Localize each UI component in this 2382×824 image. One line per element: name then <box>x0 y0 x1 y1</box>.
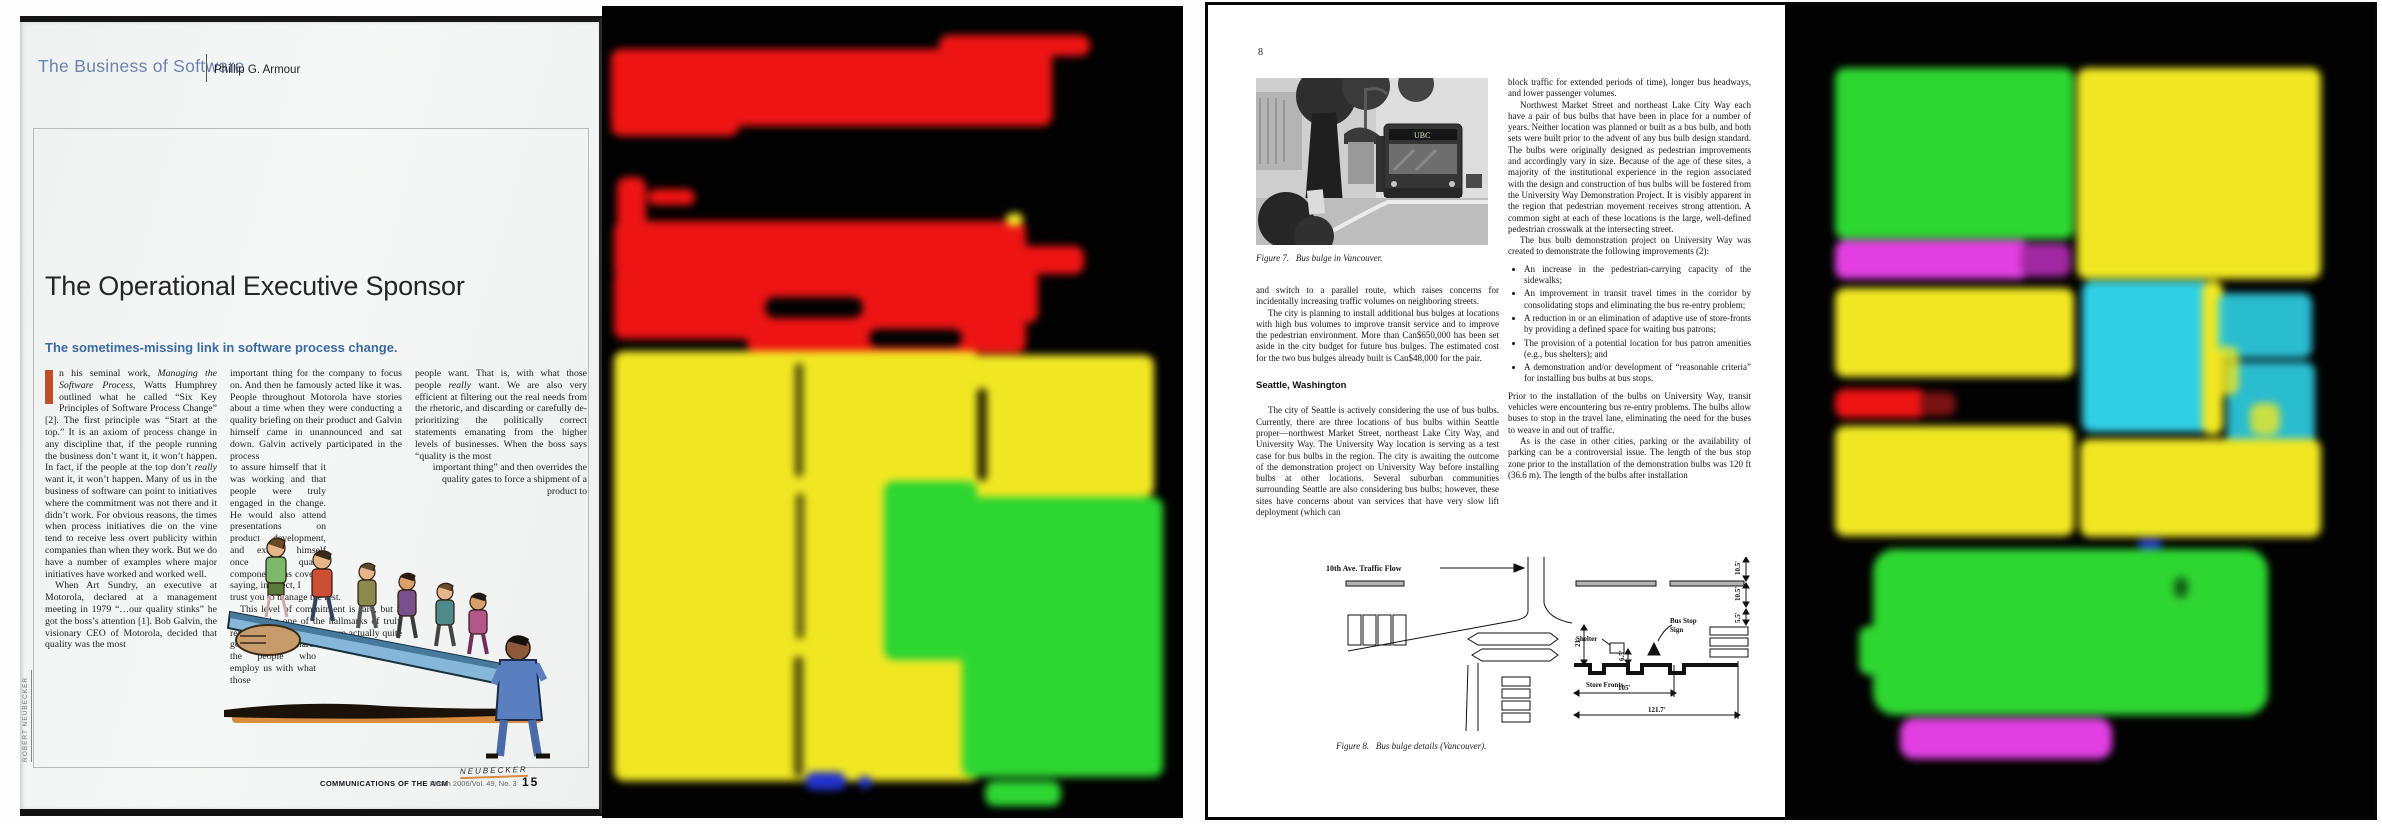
seg-region-cyan-block <box>2082 281 2212 432</box>
photo-bus-bumper <box>1384 188 1462 197</box>
paragraph: and switch to a parallel route, which ra… <box>1256 285 1499 308</box>
dim-21-label: 21' <box>1574 638 1582 647</box>
illustration-credit: ROBERT NEUBECKER <box>22 670 32 762</box>
seg-region-yellow-band-2 <box>1835 426 2074 536</box>
seg-region-red-band-1 <box>611 49 1053 126</box>
photo-car <box>1466 174 1482 188</box>
bus-bulb-2 <box>1472 649 1558 661</box>
figure-businessman <box>486 635 550 756</box>
dim-55-label: 5.5' <box>1734 612 1742 623</box>
seg-gutter-streak-2 <box>796 493 804 639</box>
seg-region-yellow-dot <box>1006 213 1023 226</box>
dim-105a-label: 10.5' <box>1734 561 1742 575</box>
paragraph: important thing for the company to focus… <box>230 368 402 462</box>
seg-region-green-lobe <box>1859 626 1888 675</box>
improvements-list: An increase in the pedestrian-carrying c… <box>1508 264 1751 385</box>
traffic-flow-label: 10th Ave. Traffic Flow <box>1326 564 1402 573</box>
lane-dash-2 <box>1670 581 1744 586</box>
bus-bulb-1 <box>1468 633 1558 645</box>
seg-region-blue-speck <box>2138 539 2162 549</box>
photo-shelter-glass <box>1348 142 1374 184</box>
seg-region-magenta-band <box>1835 240 2029 279</box>
seg-region-yellow-under-cyan <box>2080 439 2321 536</box>
document-page-right: 8 UBC <box>1208 5 1785 817</box>
photo-headlight-right <box>1449 181 1455 187</box>
page-number: 8 <box>1258 47 1263 58</box>
paragraph: When Art Sundry, an executive at Motorol… <box>45 580 217 651</box>
right-page-column-left: and switch to a parallel route, which ra… <box>1256 285 1499 518</box>
author-name: Phillip G. Armour <box>214 64 300 76</box>
figure8-caption: Figure 8. Bus bulge details (Vancouver). <box>1336 741 1656 751</box>
dim-65-label: 6.5' <box>1618 650 1626 661</box>
seg-region-blue-speck-2 <box>858 776 873 788</box>
right-page-column-right: block traffic for extended periods of ti… <box>1508 77 1751 481</box>
giant-hand <box>236 625 300 655</box>
body-column-1: n his seminal work, Managing the Softwar… <box>45 368 217 784</box>
figure-purple <box>398 573 416 638</box>
lower-street-2 <box>1466 665 1468 731</box>
seg-region-blue-speck <box>805 772 846 790</box>
list-item: An increase in the pedestrian-carrying c… <box>1524 264 1751 287</box>
segmentation-blobs <box>1785 5 2374 817</box>
seg-region-yellow-right-top <box>2077 68 2321 279</box>
panel-right: 8 UBC <box>1205 2 2377 820</box>
seg-gap-dark <box>977 388 987 481</box>
list-item: A reduction in or an elimination of adap… <box>1524 313 1751 336</box>
photo-buildings <box>1256 92 1302 170</box>
seg-hole-dark-1 <box>765 297 864 318</box>
figure-pink <box>469 593 487 654</box>
drop-cap-i <box>45 370 53 404</box>
seg-region-magenta-bottom <box>1900 718 2112 759</box>
paragraph: block traffic for extended periods of ti… <box>1508 77 1751 100</box>
seg-region-magenta-tail <box>2021 243 2071 277</box>
crosswalk-lower <box>1502 677 1530 722</box>
seg-hole-dark-2 <box>869 329 962 347</box>
cartoon-illustration <box>202 452 586 766</box>
document-page-left: The Business of Software Phillip G. Armo… <box>20 16 602 816</box>
panel-left: The Business of Software Phillip G. Armo… <box>20 6 1183 818</box>
figure7-caption: Figure 7. Bus bulge in Vancouver. <box>1256 253 1496 263</box>
seg-speck-yellow-1 <box>2215 346 2239 395</box>
artist-signature: NEUBECKER <box>460 765 528 779</box>
paragraph: Northwest Market Street and northeast La… <box>1508 100 1751 236</box>
seg-region-red-band-1b <box>611 116 739 136</box>
figure-woman-green <box>266 538 287 617</box>
seg-region-red-band-2f <box>614 311 759 339</box>
figure-man-red <box>312 551 333 621</box>
bus-photo: UBC <box>1256 78 1488 245</box>
seg-region-yellow-band-1 <box>1835 288 2074 377</box>
seg-region-green-tab <box>985 781 1061 805</box>
figure-teal <box>436 583 454 646</box>
paragraph: As is the case in other cities, parking … <box>1508 436 1751 481</box>
paragraph: Prior to the installation of the bulbs o… <box>1508 391 1751 436</box>
lane-dash-1 <box>1576 581 1656 586</box>
paragraph: The bus bulb demonstration project on Un… <box>1508 235 1751 258</box>
seg-region-red-band <box>1835 389 1926 418</box>
photo-sign-board <box>1307 189 1325 215</box>
photo-windshield <box>1389 144 1457 174</box>
header-divider <box>206 54 207 82</box>
footer-issue: March 2006/Vol. 49, No. 3 <box>430 779 517 788</box>
paragraph: people want. That is, with what those pe… <box>415 368 587 462</box>
bus-bulge-diagram: 10th Ave. Traffic Flow Bus Stop Sign She… <box>1318 557 1758 737</box>
seg-speck-yellow-2 <box>2250 403 2279 435</box>
paragraph: The city is planning to install addition… <box>1256 308 1499 364</box>
seg-gutter-streak-1 <box>795 363 803 477</box>
seg-region-green-top <box>1835 68 2074 239</box>
ground-shadow <box>224 704 524 719</box>
lane-dash-left <box>1346 581 1404 586</box>
segmentation-map-right <box>1785 5 2374 817</box>
article-title: The Operational Executive Sponsor <box>45 272 475 301</box>
shelter-leader <box>1602 639 1610 645</box>
list-item: An improvement in transit travel times i… <box>1524 288 1751 311</box>
paragraph: n his seminal work, Managing the Softwar… <box>45 368 217 580</box>
traffic-flow-arrowhead <box>1514 564 1524 572</box>
crosswalk-right <box>1710 627 1748 657</box>
crosswalk-left <box>1348 615 1406 645</box>
segmentation-blobs <box>602 6 1183 818</box>
section-heading: Seattle, Washington <box>1256 380 1499 391</box>
dim-1217-label: 121.7' <box>1648 706 1666 714</box>
dim-105b-label: 10.5' <box>1734 587 1742 601</box>
list-item: The provision of a potential location fo… <box>1524 338 1751 361</box>
bus-stop-sign-label-1: Bus Stop <box>1670 617 1697 625</box>
seg-region-green-bottom <box>1873 549 2268 715</box>
bus-destination-sign: UBC <box>1414 131 1430 140</box>
seg-region-red-band-2b <box>648 189 694 205</box>
paragraph: The city of Seattle is actively consider… <box>1256 405 1499 518</box>
seg-gutter-streak-3 <box>794 656 803 778</box>
segmentation-map-left <box>602 6 1183 818</box>
bus-stop-sign-marker <box>1648 643 1660 655</box>
store-fronts-outline <box>1574 665 1738 673</box>
figure-olive <box>358 563 376 628</box>
list-item: A demonstration and/or development of “r… <box>1524 362 1751 385</box>
article-subtitle: The sometimes-missing link in software p… <box>45 340 565 355</box>
seg-region-yellow-right <box>971 355 1154 497</box>
seg-speck-dark <box>2174 577 2189 597</box>
curb-curve-right <box>1544 603 1572 623</box>
seg-region-green-2 <box>962 497 1162 777</box>
footer-page-number: 15 <box>522 775 539 789</box>
bus-stop-sign-label-2: Sign <box>1670 626 1683 634</box>
seg-region-red-tail <box>1920 392 1955 416</box>
photo-headlight-left <box>1391 181 1397 187</box>
dim-105-label: 105' <box>1618 684 1631 692</box>
